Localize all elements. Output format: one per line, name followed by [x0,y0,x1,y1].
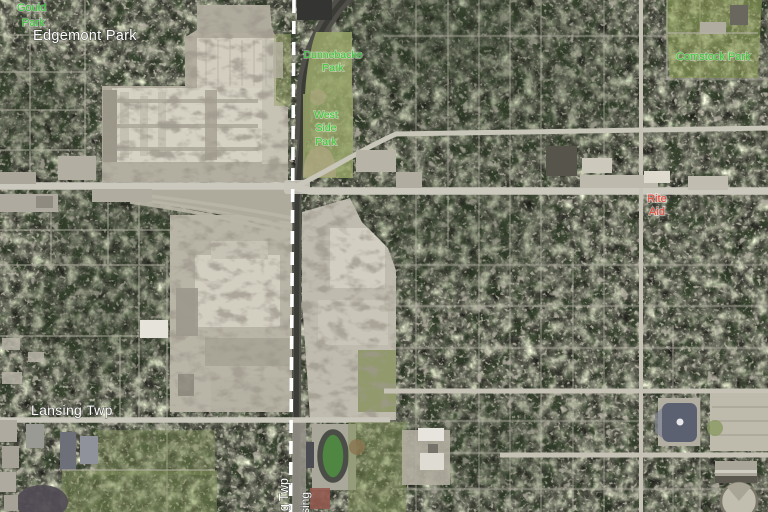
svg-text:Lansing Twp: Lansing Twp [277,478,291,512]
svg-text:Side: Side [315,122,336,134]
svg-text:Dunnebacke: Dunnebacke [304,49,363,61]
svg-text:West: West [314,109,338,121]
svg-text:Park: Park [315,136,337,148]
svg-text:Comstock Park: Comstock Park [676,51,751,63]
svg-text:Gould: Gould [17,2,46,14]
svg-text:Lansing Twp: Lansing Twp [31,402,113,418]
svg-text:Aid: Aid [649,206,665,218]
svg-text:Rite: Rite [647,193,667,205]
svg-text:Park: Park [322,62,344,74]
svg-text:Lansing: Lansing [298,492,312,512]
svg-text:Edgemont Park: Edgemont Park [33,28,137,44]
